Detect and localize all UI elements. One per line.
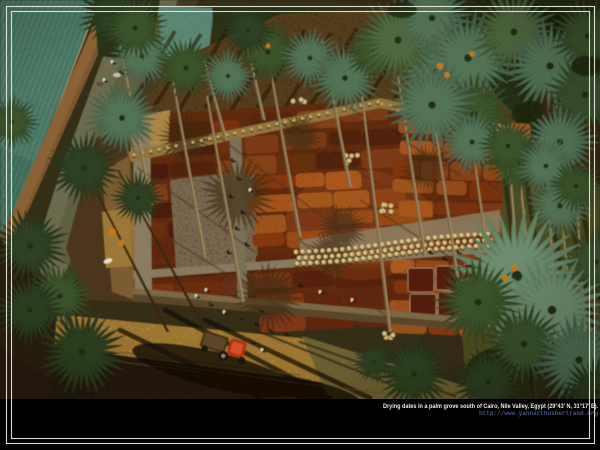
svg-text:Drying dates in a palm grove s: Drying dates in a palm grove south of Ca…: [383, 402, 598, 410]
svg-text:http://www.yannarthusbertrand.: http://www.yannarthusbertrand.org: [479, 410, 598, 417]
